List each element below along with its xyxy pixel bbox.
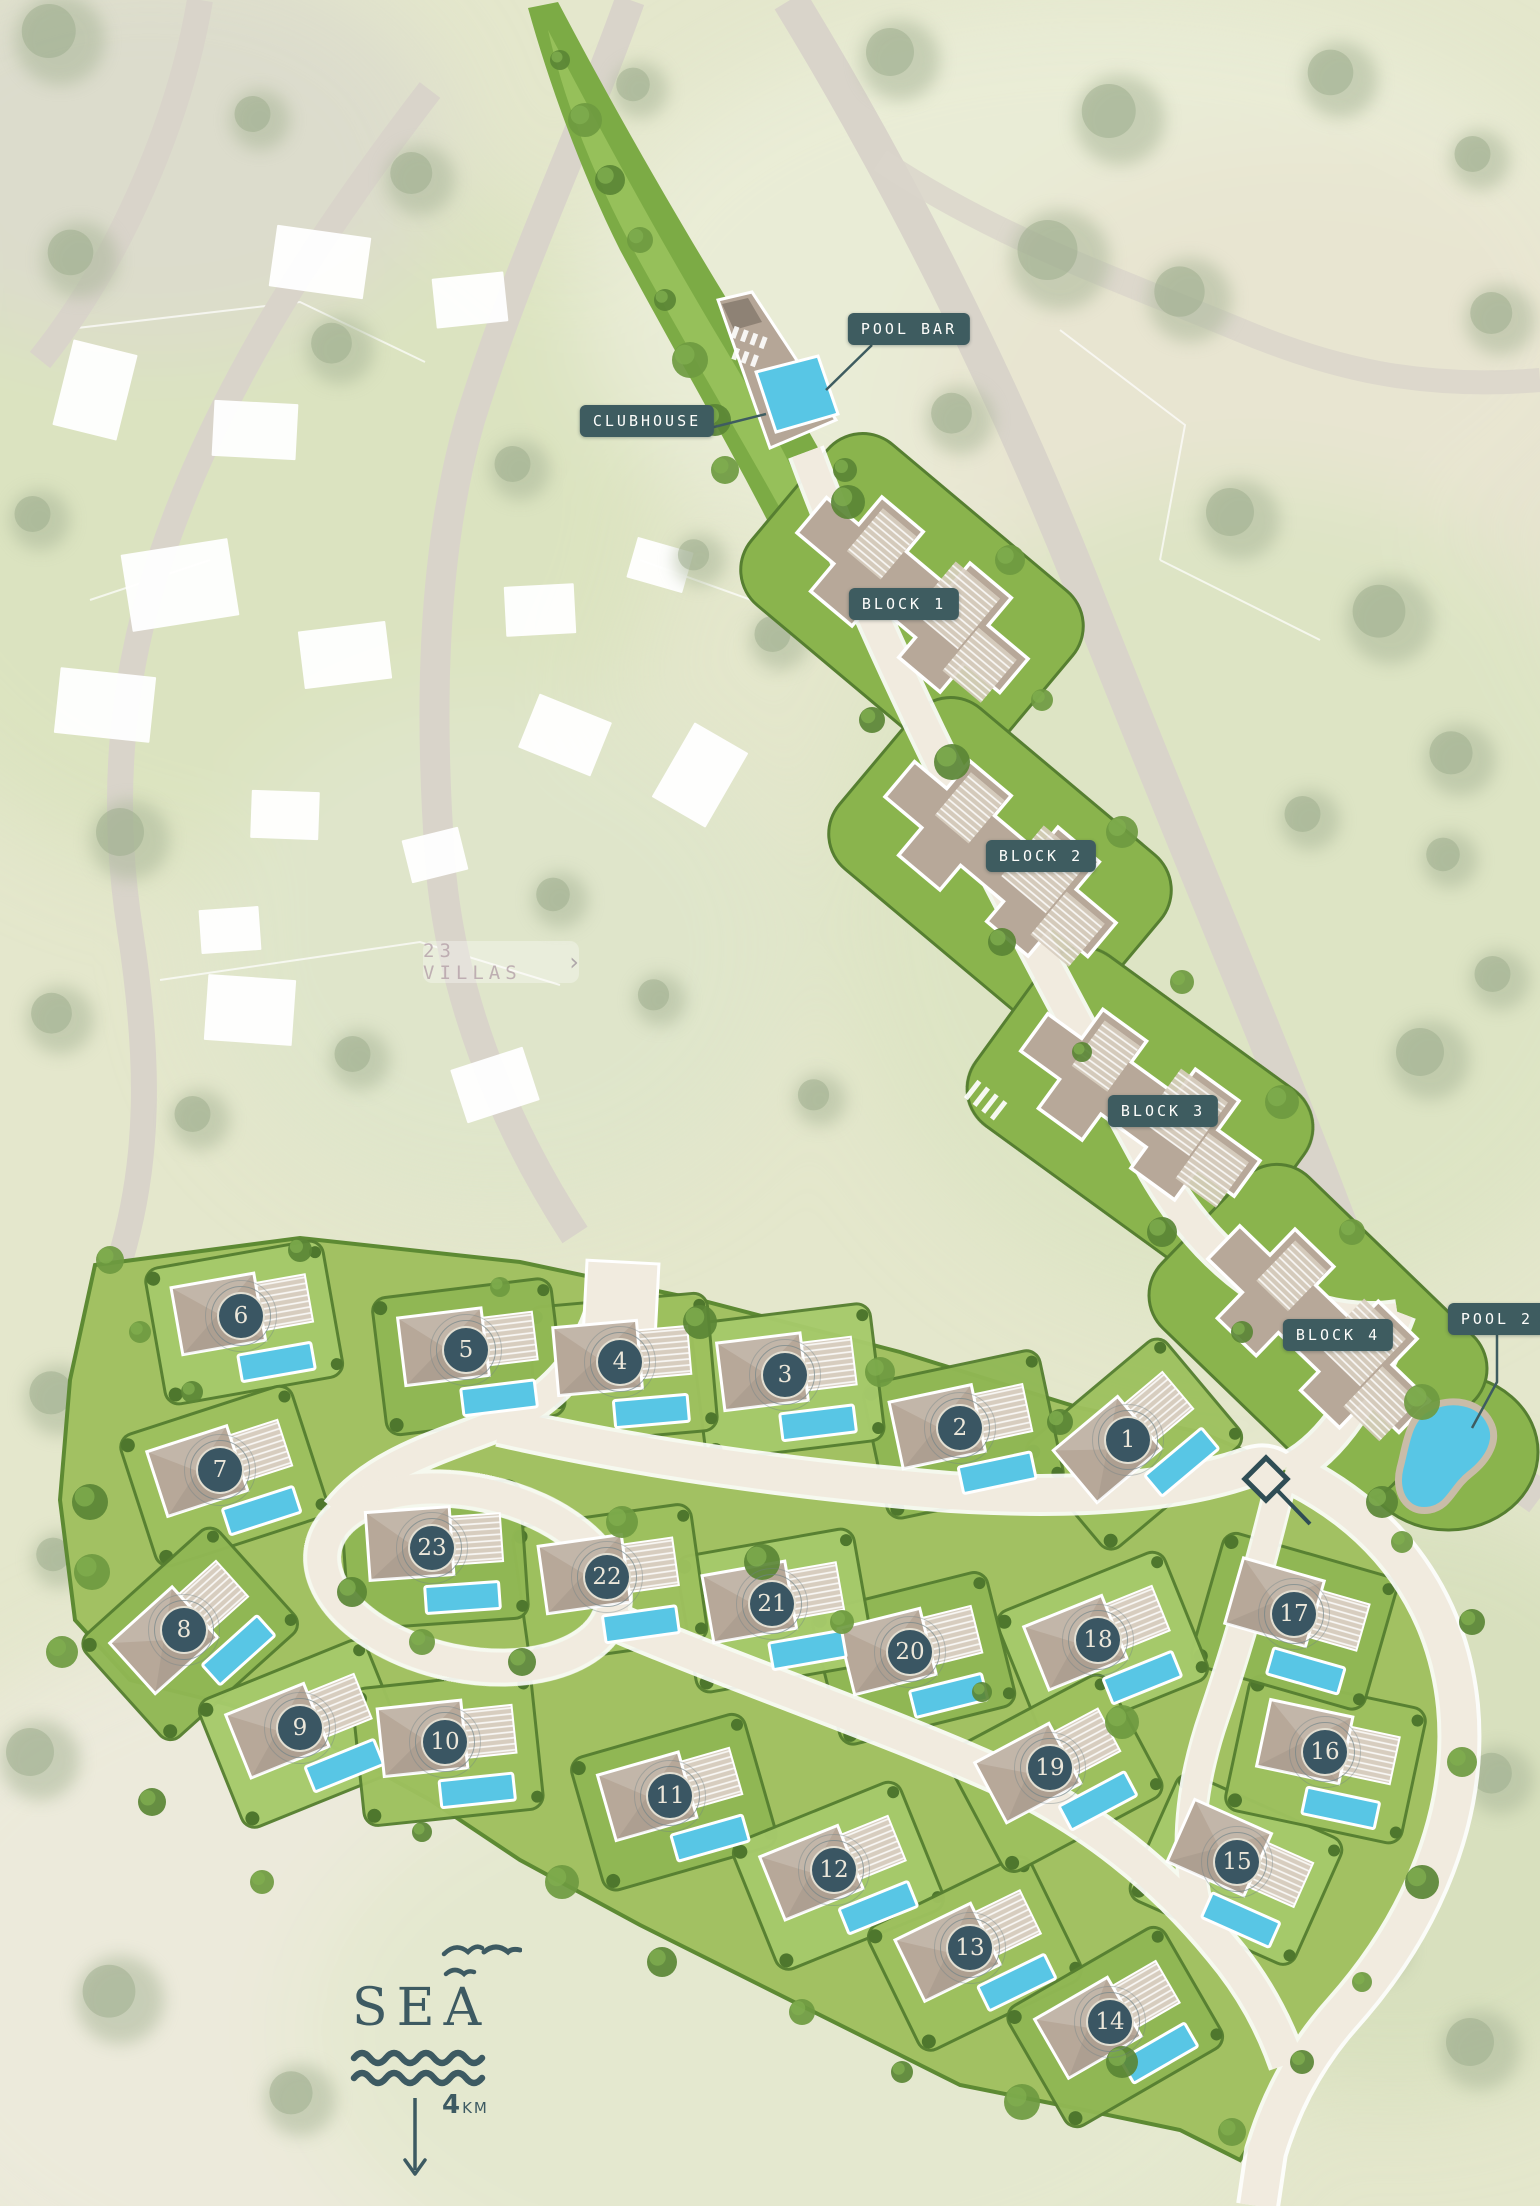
- pool-bar-label: POOL BAR: [848, 313, 970, 345]
- block-label-4[interactable]: BLOCK 4: [1283, 1319, 1393, 1351]
- villa-marker-10[interactable]: 10: [421, 1718, 469, 1766]
- villas-chip-button[interactable]: 23 VILLAS ›: [423, 941, 579, 983]
- villa-marker-16[interactable]: 16: [1301, 1728, 1349, 1776]
- villa-marker-6[interactable]: 6: [217, 1292, 265, 1340]
- site-plan-map: 23 VILLAS › POOL BAR CLUBHOUSE POOL 2 BL…: [0, 0, 1540, 2206]
- villa-marker-4[interactable]: 4: [596, 1338, 644, 1386]
- villa-marker-15[interactable]: 15: [1213, 1838, 1261, 1886]
- villa-marker-13[interactable]: 13: [946, 1924, 994, 1972]
- villa-marker-8[interactable]: 8: [160, 1606, 208, 1654]
- villa-marker-7[interactable]: 7: [196, 1446, 244, 1494]
- villas-chip-label: 23 VILLAS: [423, 940, 553, 984]
- sea-title: SEA: [352, 1978, 490, 2038]
- sea-distance-value: 4: [442, 2090, 460, 2120]
- block-label-3[interactable]: BLOCK 3: [1108, 1095, 1218, 1127]
- villa-marker-14[interactable]: 14: [1086, 1998, 1134, 2046]
- block-label-2[interactable]: BLOCK 2: [986, 840, 1096, 872]
- villa-marker-12[interactable]: 12: [810, 1846, 858, 1894]
- villa-marker-2[interactable]: 2: [936, 1404, 984, 1452]
- villa-marker-9[interactable]: 9: [276, 1704, 324, 1752]
- pool-2-label: POOL 2: [1448, 1303, 1540, 1335]
- villa-marker-23[interactable]: 23: [408, 1524, 456, 1572]
- block-label-1[interactable]: BLOCK 1: [849, 588, 959, 620]
- villa-marker-21[interactable]: 21: [748, 1580, 796, 1628]
- villa-marker-22[interactable]: 22: [583, 1553, 631, 1601]
- villa-marker-17[interactable]: 17: [1270, 1590, 1318, 1638]
- sea-distance: 4 KM: [442, 2090, 489, 2120]
- villa-marker-5[interactable]: 5: [442, 1326, 490, 1374]
- sea-indicator: SEA 4 KM: [300, 1930, 550, 2206]
- sea-distance-unit: KM: [462, 2099, 489, 2117]
- villa-marker-1[interactable]: 1: [1104, 1416, 1152, 1464]
- sea-direction-arrow: [402, 2096, 428, 2188]
- villa-marker-3[interactable]: 3: [761, 1351, 809, 1399]
- villa-marker-18[interactable]: 18: [1074, 1616, 1122, 1664]
- villa-marker-20[interactable]: 20: [886, 1628, 934, 1676]
- clubhouse-label: CLUBHOUSE: [580, 405, 714, 437]
- chevron-right-icon: ›: [569, 950, 579, 974]
- villa-marker-11[interactable]: 11: [646, 1772, 694, 1820]
- waves-icon: [350, 2048, 486, 2090]
- labels-overlay: 23 VILLAS › POOL BAR CLUBHOUSE POOL 2 BL…: [0, 0, 1540, 2206]
- villa-marker-19[interactable]: 19: [1026, 1744, 1074, 1792]
